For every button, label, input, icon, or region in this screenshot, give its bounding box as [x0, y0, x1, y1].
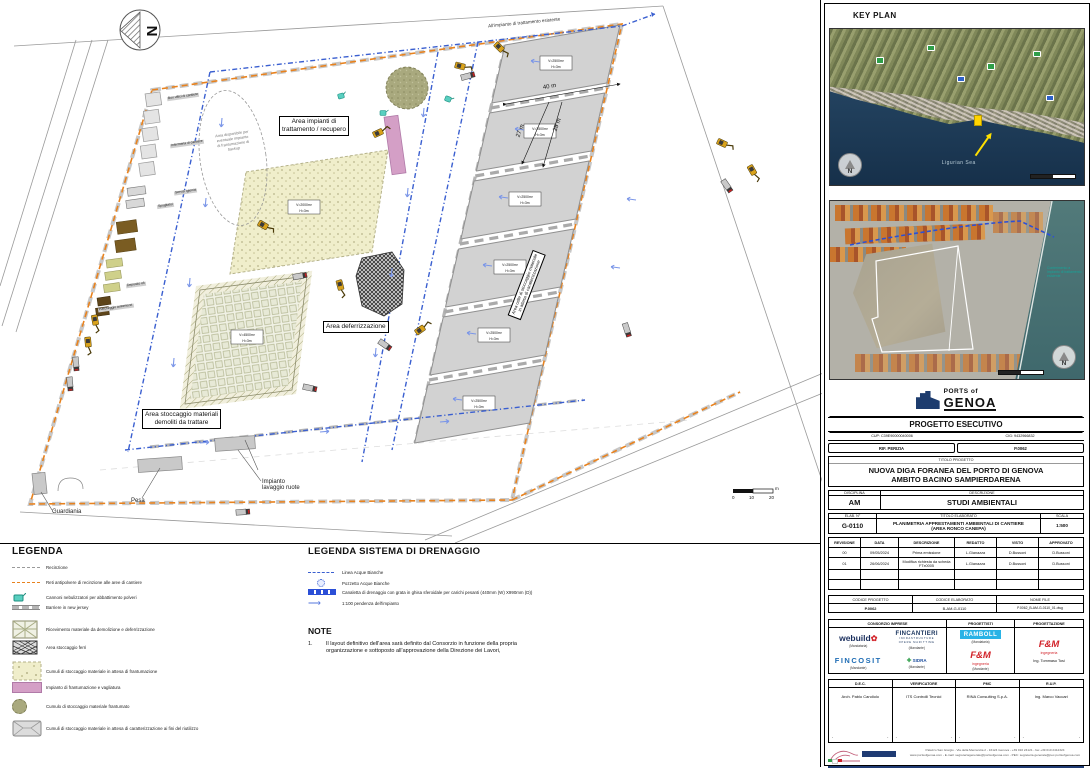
road-shield-icon	[1046, 95, 1054, 102]
fog-cannon-icon	[12, 593, 46, 602]
webuild-logo: webuild✿ (Mandataria)	[829, 628, 888, 653]
drainage-legend-item: Canaletta di drenaggio con grata in ghis…	[308, 589, 532, 595]
guardiania-structure	[32, 472, 47, 494]
nome-file-header: NOME FILE	[997, 596, 1083, 604]
project-stage: PROGETTO ESECUTIVO	[828, 417, 1084, 432]
road-shield-icon	[927, 45, 935, 52]
project-title-line2: AMBITO BACINO SAMPIERDARENA	[829, 475, 1083, 484]
map-scale-bar	[998, 370, 1044, 375]
progettisti-cell: RAMBOLL (Mandataria) F&M ingegneria (Man…	[947, 628, 1015, 673]
cup-code: CUP: C39E90000040006	[828, 432, 956, 440]
rev-cell: 09/05/2024	[861, 548, 899, 558]
rev-cell-empty	[955, 570, 997, 580]
north-letter: N	[143, 26, 160, 37]
descrizione-value: STUDI AMBIENTALI	[881, 496, 1083, 509]
legend-item: Recinzione	[12, 565, 68, 570]
title-block-footer: Palazzo San Giorgio - Via della Mercanzi…	[828, 746, 1084, 770]
keyplan-title: KEY PLAN	[853, 11, 897, 20]
engineer-name: Ing. Tommaso Tosi	[1033, 659, 1065, 663]
rev-cell-empty	[997, 570, 1039, 580]
titolo-elaborato-value: PLANIMETRIA APPRESTAMENTI AMBIENTALI DI …	[877, 519, 1041, 533]
legend-title: LEGENDA	[12, 546, 63, 557]
drainage-arrowhead	[651, 12, 655, 17]
road-shield-icon	[957, 76, 965, 83]
rup-value: Ing. Marco Vaccari..	[1020, 688, 1084, 742]
rev-cell-empty	[899, 580, 955, 589]
verificatore-header: VERIFICATORE	[893, 680, 957, 688]
area-stoccaggio-label: Area stoccaggio materialidemoliti da tra…	[142, 409, 221, 429]
fm-ingegneria-logo: F&M ingegneria (Mandante)	[970, 650, 991, 673]
fincantieri-logo: FINCANTIERI INFRASTRUCTURE OPERE MARITTI…	[888, 628, 947, 653]
rev-cell-empty	[829, 570, 861, 580]
treatment-plant-callout: Conferimento a impianto di trattamento e…	[1047, 267, 1083, 279]
progettazione-cell: F&M ingegneria Ing. Tommaso Tosi	[1015, 628, 1083, 673]
legend-item: Cumuli di stoccaggio materiale in attesa…	[12, 661, 157, 681]
svg-text:H=3m: H=3m	[242, 339, 251, 343]
slope-arrow-icon: ⟶	[308, 599, 342, 608]
legend-item: Area stoccaggio ferri	[12, 640, 86, 655]
legend-item: Cumuli di stoccaggio materiale in attesa…	[12, 720, 476, 737]
sheet-divider-vertical	[820, 0, 821, 767]
storage-cells	[415, 25, 620, 443]
legend-item: Reti antipolvere di recinzione alle aree…	[12, 580, 142, 585]
legend-item: Ricevimento materiale da demolizione e d…	[12, 620, 155, 639]
svg-text:H=3m: H=3m	[489, 337, 498, 341]
legend-item: Cumulo di stoccaggio materiale frantumat…	[12, 699, 129, 714]
fence-icon	[12, 567, 46, 568]
yellow-volume-label: V=2000m³H=3m	[288, 200, 320, 214]
gate-arcs	[58, 478, 83, 491]
progettazione-header: PROGETTAZIONE	[1015, 620, 1083, 628]
impianto-frantumazione	[384, 115, 406, 174]
svg-text:H=3m: H=3m	[520, 201, 529, 205]
note-number: 1.	[308, 641, 313, 647]
svg-text:V=2500m³: V=2500m³	[548, 59, 565, 63]
ports-of-genoa-logo: PORTS of GENOA	[828, 383, 1084, 417]
elaborato-table: ELAB. N° TITOLO ELABORATO SCALA G-0110 P…	[828, 513, 1084, 534]
dec-value: Arch. Pablo Candiolo..	[829, 688, 893, 742]
demolition-receiving-icon	[12, 620, 46, 639]
rev-cell-empty	[899, 570, 955, 580]
project-title-line1: NUOVA DIGA FORANEA DEL PORTO DI GENOVA	[829, 466, 1083, 475]
drainage-legend-item: Linea Acque Bianche	[308, 570, 383, 575]
lavaggio-ruote-structure	[215, 436, 256, 452]
rev-header: DATA	[861, 538, 899, 548]
verificatore-value: ITS Controlli Tecnici..	[893, 688, 957, 742]
svg-text:V=2500m³: V=2500m³	[502, 263, 519, 267]
jersey-barrier-icon	[12, 605, 46, 610]
rev-cell: Modifica richiesta da scheda FTx0005	[899, 558, 955, 570]
progettisti-header: PROGETTISTI	[947, 620, 1015, 628]
rif-perizia: RIF. PERIZIA	[828, 443, 955, 453]
cumulo-frantumato	[386, 67, 428, 109]
disciplina-value: AM	[829, 496, 881, 509]
rev-header: APPROVATO	[1039, 538, 1083, 548]
pmc-value: RINA Consulting S.p.A...	[956, 688, 1020, 742]
drainage-channel-icon	[308, 589, 342, 595]
ports-of-genoa-crane-icon	[916, 391, 940, 409]
rev-cell-empty	[829, 580, 861, 589]
drainage-legend-item: Pozzetto Acque Bianche	[308, 579, 390, 587]
revision-table: REVISIONE DATA DESCRIZIONE REDATTO VISTO…	[828, 537, 1084, 590]
sea-label: Ligurian Sea	[942, 160, 976, 166]
right-panel: KEY PLAN Ligurian Sea N Conferimento a	[824, 3, 1090, 766]
rev-cell: D.Bussoni	[997, 558, 1039, 570]
note-text: Il layout definitivo dell'area sarà defi…	[326, 641, 551, 656]
site-location-marker	[974, 115, 982, 126]
rev-cell: L.Gianazza	[955, 558, 997, 570]
codice-elaborato-value: B-AM-G-0110	[913, 604, 997, 612]
crushed-pile-icon	[12, 699, 46, 714]
elab-value: G-0110	[829, 519, 877, 533]
rev-header: VISTO	[997, 538, 1039, 548]
companies-table: CONSORZIO IMPRESE PROGETTISTI PROGETTAZI…	[828, 619, 1084, 674]
legend-item: Impianto di frantumazione e vagliatura	[12, 682, 120, 693]
codice-elaborato-header: CODICE ELABORATO	[913, 596, 997, 604]
crushing-stockpile-icon	[12, 661, 46, 681]
rev-cell-empty	[1039, 570, 1083, 580]
svg-text:V=2500m³: V=2500m³	[486, 331, 503, 335]
rev-cell-empty	[997, 580, 1039, 589]
svg-text:V=2500m³: V=2500m³	[471, 399, 488, 403]
svg-text:H=3m: H=3m	[535, 133, 544, 137]
road-shield-icon	[876, 57, 884, 64]
rev-cell-empty	[861, 580, 899, 589]
svg-text:10: 10	[749, 495, 755, 500]
legend-item: Cannoni nebulizzatori per abbattimento p…	[12, 593, 137, 602]
dec-header: D.E.C.	[829, 680, 893, 688]
fm-ingegneria-logo: F&M ingegneria	[1039, 639, 1060, 657]
legend-item: Barriere in new jersey	[12, 605, 88, 610]
pmc-header: PMC	[956, 680, 1020, 688]
area-deferrizzazione-label: Area deferrizzazione	[323, 321, 389, 333]
characterization-pile-icon	[12, 720, 46, 737]
svg-text:0: 0	[732, 495, 735, 500]
rif-perizia-value: P.0062	[957, 443, 1084, 453]
pesa-label: Pesa	[131, 498, 145, 504]
drawing-sheet: { "plan": { "north_letter": "N", "offsit…	[0, 0, 1091, 767]
svg-text:V=4500m³: V=4500m³	[239, 333, 256, 337]
north-badge-icon: N	[838, 153, 862, 177]
rev-header: REVISIONE	[829, 538, 861, 548]
svg-text:V=2500m³: V=2500m³	[532, 127, 549, 131]
keyplan-map-aerial: Conferimento a impianto di trattamento e…	[829, 200, 1085, 380]
map-scale-bar	[1030, 174, 1076, 179]
rev-cell-empty	[955, 580, 997, 589]
site-plan: N V=2500m³H=3m V=2500m³H=3m V=2500m³H=3m…	[0, 0, 822, 543]
footer-address: Palazzo San Giorgio - Via della Mercanzi…	[906, 748, 1084, 757]
svg-text:m: m	[775, 486, 779, 491]
rev-cell: 00	[829, 548, 861, 558]
fincosit-logo: FINCOSIT (Mandante)	[829, 653, 888, 673]
plan-scale-bar: 0 10 20 m	[732, 486, 779, 500]
rif-perizia-row: RIF. PERIZIA P.0062	[828, 443, 1084, 453]
rev-cell: L.Gianazza	[955, 548, 997, 558]
ramboll-logo: RAMBOLL (Mandataria)	[960, 628, 1002, 646]
keyplan-map-regional: Ligurian Sea N	[829, 28, 1085, 186]
sheet-divider-horizontal	[0, 543, 821, 544]
svg-text:H=3m: H=3m	[474, 405, 483, 409]
rev-header: DESCRIZIONE	[899, 538, 955, 548]
svg-text:20: 20	[769, 495, 775, 500]
discipline-table: DISCIPLINA DESCRIZIONE AM STUDI AMBIENTA…	[828, 490, 1084, 510]
white-water-line-icon	[308, 572, 342, 573]
rev-cell: 26/06/2024	[861, 558, 899, 570]
svg-text:V=2000m³: V=2000m³	[296, 203, 313, 207]
consorzio-header: CONSORZIO IMPRESE	[829, 620, 947, 628]
codes-table: CODICE PROGETTO CODICE ELABORATO NOME FI…	[828, 595, 1084, 613]
logo-genoa: GENOA	[944, 396, 997, 411]
consorzio-cell: webuild✿ (Mandataria) FINCANTIERI INFRAS…	[829, 628, 947, 673]
project-title-box: TITOLO PROGETTO NUOVA DIGA FORANEA DEL P…	[828, 456, 1084, 487]
drainage-legend-title: LEGENDA SISTEMA DI DRENAGGIO	[308, 546, 480, 557]
svg-text:H=3m: H=3m	[505, 269, 514, 273]
drainage-legend-item: ⟶ 1:100 pendenza dell'impianto	[308, 599, 399, 608]
nome-file-value: P.0062_B-AM-G-0110_01.dwg	[997, 604, 1083, 612]
italian-flag-icon	[828, 759, 842, 764]
dust-net-icon	[12, 582, 46, 583]
title-block: PORTS of GENOA PROGETTO ESECUTIVO CUP: C…	[828, 383, 1084, 770]
cig-code: CIG: 9432966832	[956, 432, 1084, 440]
area-stoccaggio-ferri	[356, 252, 404, 316]
svg-text:H=3m: H=3m	[551, 65, 560, 69]
road-shield-icon	[1033, 51, 1041, 58]
road-shield-icon	[987, 63, 995, 70]
aerial-overlay	[830, 201, 1084, 379]
iron-storage-icon	[12, 640, 46, 655]
lavaggio-ruote-label: Impiantolavaggio ruote	[262, 479, 300, 491]
svg-text:V=2500m³: V=2500m³	[517, 195, 534, 199]
responsibles-table: D.E.C. VERIFICATORE PMC R.U.P. Arch. Pab…	[828, 679, 1084, 743]
rev-cell: D.Bussoni	[1039, 548, 1083, 558]
rev-cell-empty	[861, 570, 899, 580]
rup-header: R.U.P.	[1020, 680, 1084, 688]
cup-cig-row: CUP: C39E90000040006 CIG: 9432966832	[828, 432, 1084, 441]
notes-title: NOTE	[308, 626, 332, 636]
sidra-logo: ✚ SIDRA (Mandante)	[888, 653, 947, 673]
svg-text:H=3m: H=3m	[299, 209, 308, 213]
codice-progetto-header: CODICE PROGETTO	[829, 596, 913, 604]
rev-cell: 01	[829, 558, 861, 570]
rev-cell-empty	[1039, 580, 1083, 589]
crusher-plant-icon	[12, 682, 46, 693]
project-title-header: TITOLO PROGETTO	[829, 457, 1083, 464]
pesa-structure	[138, 456, 183, 472]
authority-badge	[862, 751, 896, 757]
rev-header: REDATTO	[955, 538, 997, 548]
manhole-icon	[308, 579, 342, 587]
square-volume-label: V=4500m³H=3m	[231, 330, 263, 344]
guardiania-label: Guardiania	[52, 509, 81, 515]
scala-value: 1:500	[1041, 519, 1083, 533]
area-impianti-label: Area impianti ditrattamento / recupero	[279, 116, 349, 136]
rev-cell: D.Bussoni	[997, 548, 1039, 558]
rev-cell: D.Bussoni	[1039, 558, 1083, 570]
north-arrow: N	[120, 10, 160, 50]
north-badge-icon: N	[1052, 345, 1076, 369]
codice-progetto-value: P.0062	[829, 604, 913, 612]
rev-cell: Prima emissione	[899, 548, 955, 558]
